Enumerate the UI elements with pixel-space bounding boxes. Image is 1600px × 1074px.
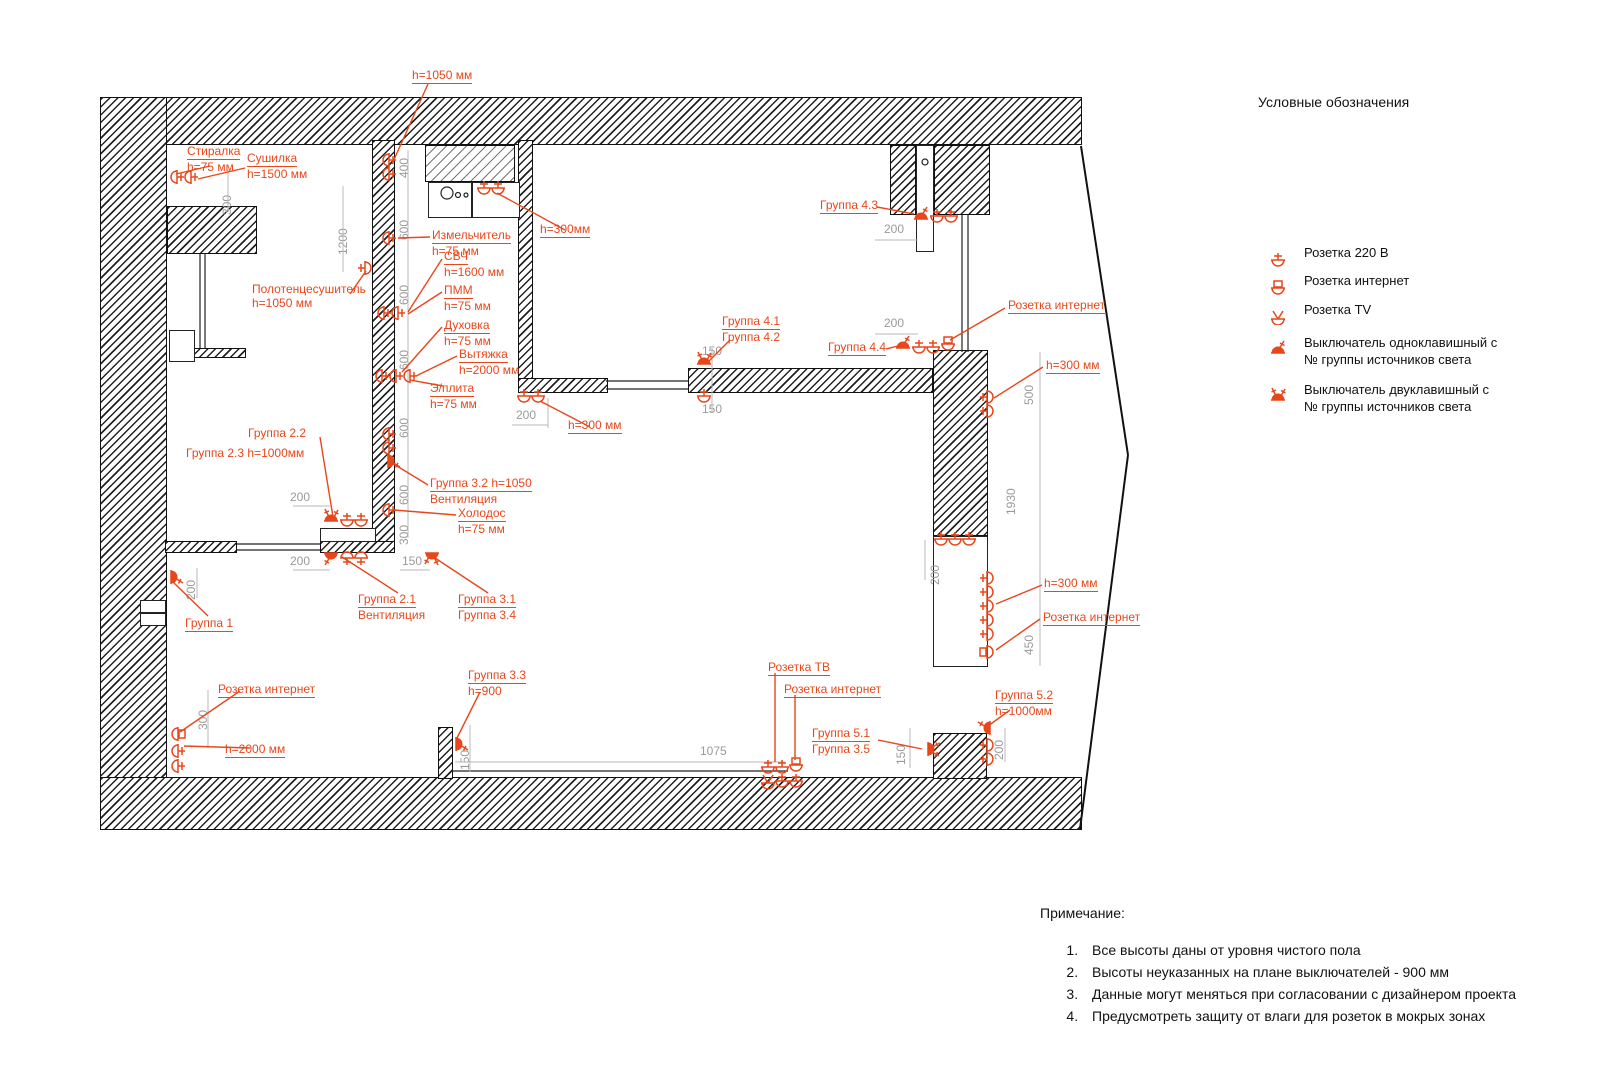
- annotation-text: Розетка интернет: [1043, 610, 1140, 626]
- annotation-text: Духовка: [444, 318, 490, 334]
- leader-line: [408, 259, 442, 312]
- leader-line: [996, 619, 1040, 650]
- legend-item: Розетка интернет: [1266, 270, 1409, 296]
- annotation-label: Группа 2.3 h=1000мм: [186, 446, 304, 460]
- annotation-label: Группа 1: [185, 616, 233, 632]
- note-item: Предусмотреть защиту от влаги для розето…: [1082, 1005, 1516, 1027]
- leader-line: [416, 356, 457, 376]
- annotation-text: Группа 3.1: [458, 592, 516, 608]
- annotation-text: Группа 3.4: [458, 608, 516, 622]
- power-socket-icon: [531, 389, 545, 402]
- annotation-label: Сушилкаh=1500 мм: [247, 151, 307, 181]
- annotation-label: Группа 5.2h=1000мм: [995, 688, 1053, 718]
- annotation-text: Розетка интернет: [218, 682, 315, 698]
- power-socket-icon: [376, 369, 389, 383]
- power-socket-icon: [340, 513, 354, 526]
- annotation-text: Группа 5.2: [995, 688, 1053, 704]
- annotation-label: Группа 2.1Вентиляция: [358, 592, 425, 622]
- power-socket-icon: [477, 181, 491, 194]
- annotation-label: Э/плитаh=75 мм: [430, 381, 477, 411]
- annotation-label: СВЧh=1600 мм: [444, 249, 504, 279]
- power-socket-icon: [697, 389, 711, 402]
- power-socket-icon: [980, 571, 993, 585]
- annotation-text: h=900: [468, 684, 502, 698]
- annotation-label: h=1050 мм: [412, 68, 472, 84]
- annotation-text: Холодос: [458, 506, 506, 522]
- power-socket-icon: [980, 752, 993, 766]
- switch-two-gang-icon: [324, 509, 339, 521]
- annotation-text: ПММ: [444, 283, 473, 299]
- annotation-text: h=1050 мм: [252, 296, 312, 310]
- annotation-text: h=75 мм: [444, 299, 491, 313]
- annotation-text: h=1600 мм: [444, 265, 504, 279]
- leader-line: [950, 308, 1005, 340]
- switch-two-gang-icon: [1266, 379, 1290, 405]
- annotation-text: СВЧ: [444, 249, 468, 265]
- power-socket-icon: [930, 209, 944, 222]
- annotation-text: h=300 мм: [1044, 576, 1098, 592]
- annotation-text: h=75 мм: [458, 522, 505, 536]
- legend-item-label: Выключатель одноклавишный с№ группы исто…: [1304, 334, 1497, 368]
- switch-one-gang-icon: [456, 737, 468, 751]
- annotation-label: h=300 мм: [568, 418, 622, 434]
- legend-title: Условные обозначения: [1258, 94, 1409, 110]
- power-socket-icon: [934, 532, 948, 545]
- annotation-text: Вытяжка: [459, 347, 508, 363]
- legend-item: Розетка TV: [1266, 299, 1371, 325]
- leader-line: [456, 692, 480, 740]
- power-socket-icon: [912, 340, 926, 353]
- annotation-text: Группа 3.5: [812, 742, 870, 756]
- annotation-text: Группа 4.1: [722, 314, 780, 330]
- fixture-circle: [464, 193, 468, 197]
- power-socket-icon: [383, 503, 396, 517]
- annotation-label: Группа 3.1Группа 3.4: [458, 592, 516, 622]
- power-socket-icon: [491, 181, 505, 194]
- power-socket-icon: [172, 759, 185, 773]
- power-socket-icon: [962, 532, 976, 545]
- annotation-text: Группа 2.1: [358, 592, 416, 608]
- internet-socket-icon: [789, 758, 803, 771]
- annotation-text: h=75 мм: [430, 397, 477, 411]
- switch-one-gang-icon: [896, 336, 910, 348]
- power-socket-icon: [944, 209, 958, 222]
- tv-socket-icon: [1266, 299, 1290, 325]
- power-socket-icon: [383, 441, 396, 455]
- notes: Примечание: Все высоты даны от уровня чи…: [1040, 905, 1516, 1027]
- power-socket-icon: [354, 513, 368, 526]
- note-item: Все высоты даны от уровня чистого пола: [1082, 939, 1516, 961]
- note-item: Высоты неуказанных на плане выключателей…: [1082, 961, 1516, 983]
- annotation-text: Группа 3.3: [468, 668, 526, 684]
- switch-one-gang-icon: [324, 553, 338, 565]
- switch-one-gang-icon: [388, 454, 400, 468]
- leader-line: [877, 207, 914, 214]
- annotation-text: Группа 2.3 h=1000мм: [186, 446, 304, 460]
- annotation-label: Группа 4.1Группа 4.2: [722, 314, 780, 344]
- annotation-text: Э/плита: [430, 381, 474, 397]
- annotation-text: h=1500 мм: [247, 167, 307, 181]
- leader-line: [878, 740, 922, 749]
- power-socket-icon: [980, 404, 993, 418]
- power-socket-icon: [378, 306, 391, 320]
- annotation-text: Группа 2.2: [248, 426, 306, 440]
- annotation-label: Розетка интернет: [1043, 610, 1140, 626]
- annotation-text: Полотенцесушитель: [252, 282, 366, 296]
- power-socket-icon: [789, 774, 803, 787]
- annotation-label: Холодосh=75 мм: [458, 506, 506, 536]
- power-socket-icon: [383, 427, 396, 441]
- power-socket-icon: [383, 167, 396, 181]
- annotation-text: Группа 3.2 h=1050: [430, 476, 532, 492]
- bay-outline: [1080, 455, 1128, 829]
- switch-one-gang-icon: [1266, 332, 1290, 358]
- annotation-label: ПММh=75 мм: [444, 283, 491, 313]
- floor-plan-canvas: Условные обозначенияРозетка 220 ВРозетка…: [0, 0, 1600, 1074]
- annotation-text: h=1000мм: [995, 704, 1052, 718]
- annotation-text: Группа 4.3: [820, 198, 878, 214]
- power-socket-icon: [980, 390, 993, 404]
- annotation-label: Полотенцесушительh=1050 мм: [252, 282, 366, 310]
- annotation-text: Сушилка: [247, 151, 297, 167]
- annotation-text: Группа 4.4: [828, 340, 886, 356]
- annotation-text: Стиралка: [187, 144, 240, 160]
- tv-socket-icon: [761, 775, 775, 789]
- legend-item-label: Розетка интернет: [1304, 272, 1409, 289]
- power-socket-icon: [775, 774, 789, 787]
- annotation-label: Группа 4.4: [828, 340, 886, 356]
- fixture-circle: [456, 193, 461, 198]
- legend-item-label: Розетка TV: [1304, 301, 1371, 318]
- fixture-circle: [922, 159, 928, 165]
- notes-list: Все высоты даны от уровня чистого полаВы…: [1040, 939, 1516, 1027]
- annotation-label: Группа 4.3: [820, 198, 878, 214]
- power-socket-icon: [390, 369, 403, 383]
- annotation-label: Группа 3.2 h=1050Вентиляция: [430, 476, 532, 506]
- annotation-label: h=300 мм: [1046, 358, 1100, 374]
- switch-one-gang-icon: [171, 570, 183, 584]
- annotation-text: Вентиляция: [430, 492, 497, 506]
- switch-one-gang-icon: [978, 721, 990, 735]
- leader-line: [432, 556, 488, 593]
- annotation-text: h=300мм: [540, 222, 590, 238]
- leader-line: [173, 582, 208, 616]
- power-socket-icon: [980, 585, 993, 599]
- annotation-label: h=300мм: [540, 222, 590, 238]
- legend-item: Розетка 220 В: [1266, 242, 1389, 268]
- leader-line: [996, 585, 1042, 604]
- annotation-label: Стиралкаh=75 мм: [187, 144, 240, 174]
- annotation-text: Группа 4.2: [722, 330, 780, 344]
- leader-line: [394, 510, 456, 515]
- power-socket-icon: [980, 738, 993, 752]
- annotation-label: Группа 3.3h=900: [468, 668, 526, 698]
- power-socket-icon: [926, 340, 940, 353]
- annotation-text: Измельчитель: [432, 228, 511, 244]
- leader-line: [320, 437, 333, 517]
- legend-item-label: Розетка 220 В: [1304, 244, 1389, 261]
- annotation-label: Группа 5.1Группа 3.5: [812, 726, 870, 756]
- legend-item-label: Выключатель двуклавишный с№ группы источ…: [1304, 381, 1489, 415]
- leader-line: [994, 367, 1043, 398]
- annotation-text: h=1050 мм: [412, 68, 472, 84]
- power-socket-icon: [980, 599, 993, 613]
- annotation-text: h=300 мм: [568, 418, 622, 434]
- annotation-label: h=300 мм: [1044, 576, 1098, 592]
- legend-item: Выключатель двуклавишный с№ группы источ…: [1266, 379, 1489, 415]
- annotation-text: Вентиляция: [358, 608, 425, 622]
- power-socket-icon: [948, 532, 962, 545]
- annotation-text: Розетка интернет: [1008, 298, 1105, 314]
- annotation-text: h=300 мм: [1046, 358, 1100, 374]
- power-socket-icon: [517, 389, 531, 402]
- annotation-text: Розетка интернет: [784, 682, 881, 698]
- annotation-text: Розетка ТВ: [768, 660, 830, 676]
- leader-line: [398, 237, 430, 238]
- leader-line: [392, 463, 428, 485]
- annotation-text: h=2000 мм: [225, 742, 285, 758]
- annotation-text: h=2000 мм: [459, 363, 519, 377]
- annotation-label: h=2000 мм: [225, 742, 285, 758]
- power-socket-icon: [358, 261, 371, 275]
- annotation-label: Розетка интернет: [784, 682, 881, 698]
- annotation-text: Группа 5.1: [812, 726, 870, 742]
- annotation-label: Вытяжкаh=2000 мм: [459, 347, 519, 377]
- switch-two-gang-icon: [697, 352, 712, 364]
- power-socket-icon: [354, 552, 368, 565]
- annotation-text: h=75 мм: [444, 334, 491, 348]
- annotation-label: Розетка интернет: [218, 682, 315, 698]
- legend-item: Выключатель одноклавишный с№ группы исто…: [1266, 332, 1497, 368]
- annotation-label: Духовкаh=75 мм: [444, 318, 491, 348]
- switch-two-gang-icon: [928, 742, 940, 757]
- annotation-text: Группа 1: [185, 616, 233, 632]
- power-socket-icon: [980, 627, 993, 641]
- notes-title: Примечание:: [1040, 905, 1516, 921]
- internet-socket-icon: [1266, 270, 1290, 296]
- leader-line: [392, 84, 428, 164]
- power-socket-icon: [383, 153, 396, 167]
- note-item: Данные могут меняться при согласовании с…: [1082, 983, 1516, 1005]
- power-socket-icon: [1266, 242, 1290, 268]
- internet-socket-icon: [980, 645, 993, 659]
- annotation-label: Розетка интернет: [1008, 298, 1105, 314]
- annotation-label: Группа 2.2: [248, 426, 306, 440]
- power-socket-icon: [172, 744, 185, 758]
- power-socket-icon: [392, 306, 405, 320]
- switch-one-gang-icon: [914, 207, 928, 219]
- power-socket-icon: [980, 613, 993, 627]
- annotation-label: Розетка ТВ: [768, 660, 830, 676]
- power-socket-icon: [383, 231, 396, 245]
- annotation-text: h=75 мм: [187, 160, 234, 174]
- fixture-circle: [441, 187, 453, 199]
